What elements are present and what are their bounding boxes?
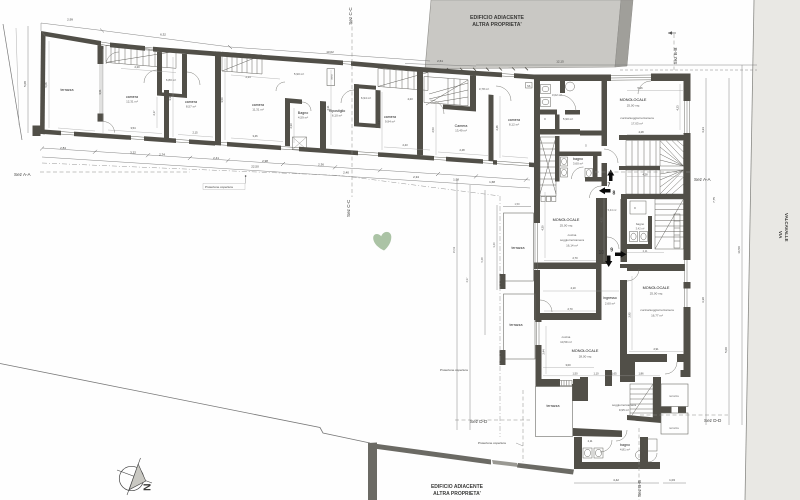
svg-text:1,10: 1,10 [593, 372, 599, 376]
svg-text:bagno: bagno [620, 443, 630, 447]
svg-text:5,90 m²: 5,90 m² [563, 117, 573, 121]
svg-text:3,60 m²: 3,60 m² [573, 162, 583, 166]
svg-text:bagno: bagno [636, 222, 645, 226]
svg-text:1,68: 1,68 [489, 180, 495, 184]
svg-text:3,78 m²: 3,78 m² [479, 87, 489, 91]
svg-text:10: 10 [598, 250, 604, 256]
svg-text:Sez A-A: Sez A-A [694, 177, 712, 182]
svg-text:2,20: 2,20 [134, 65, 140, 69]
svg-text:4,81 m²: 4,81 m² [620, 448, 630, 452]
svg-text:4,42: 4,42 [613, 478, 619, 482]
svg-text:Sez C-C: Sez C-C [348, 7, 353, 25]
svg-text:ingresso: ingresso [603, 296, 617, 300]
svg-text:2,84: 2,84 [60, 146, 66, 150]
svg-text:2,41: 2,41 [213, 156, 219, 160]
svg-text:4,59 m²: 4,59 m² [298, 116, 308, 120]
svg-text:4,28: 4,28 [638, 130, 644, 134]
svg-text:MONOLOCALE: MONOLOCALE [643, 286, 670, 290]
svg-text:2,95: 2,95 [628, 312, 632, 318]
svg-text:4,23: 4,23 [676, 105, 680, 111]
svg-text:2,33: 2,33 [289, 123, 293, 129]
svg-text:1,98: 1,98 [453, 178, 459, 182]
svg-text:camera: camera [384, 115, 396, 119]
svg-text:Sez D-D: Sez D-D [704, 418, 722, 423]
svg-text:D: D [634, 206, 636, 210]
svg-text:camera: camera [508, 118, 520, 122]
svg-text:4,28: 4,28 [642, 173, 648, 177]
svg-text:Sez D-D: Sez D-D [470, 419, 488, 424]
svg-text:22,50: 22,50 [251, 165, 259, 169]
svg-text:soggiorno/camera: soggiorno/camera [612, 403, 636, 407]
svg-text:cucina: cucina [562, 335, 571, 339]
svg-text:Sez B-B: Sez B-B [637, 480, 642, 497]
svg-text:13,02: 13,02 [326, 50, 334, 54]
svg-text:VIA: VIA [778, 231, 783, 239]
svg-text:terrazza: terrazza [512, 246, 525, 250]
svg-text:MONOLOCALE: MONOLOCALE [620, 98, 647, 102]
svg-text:3,40: 3,40 [492, 242, 496, 248]
svg-text:2,99: 2,99 [67, 18, 73, 22]
svg-text:2,70: 2,70 [567, 307, 573, 311]
svg-text:4,30: 4,30 [541, 225, 545, 231]
svg-text:7: 7 [608, 183, 611, 189]
svg-text:2,43: 2,43 [402, 143, 408, 147]
svg-text:5,08: 5,08 [23, 81, 27, 87]
svg-text:Protezione copertura: Protezione copertura [478, 441, 506, 445]
svg-text:28,00 mq: 28,00 mq [579, 355, 592, 359]
svg-text:25,00 mq: 25,00 mq [560, 224, 573, 228]
svg-text:16,14 m²: 16,14 m² [566, 244, 578, 248]
svg-text:MONOLOCALE: MONOLOCALE [553, 218, 580, 222]
svg-text:1,50: 1,50 [572, 372, 578, 376]
svg-text:2,46: 2,46 [495, 125, 499, 131]
svg-text:2,60 m²: 2,60 m² [605, 302, 615, 306]
svg-text:13,49 m²: 13,49 m² [455, 129, 467, 133]
svg-text:2,11: 2,11 [588, 439, 593, 443]
svg-text:9: 9 [610, 248, 613, 254]
svg-text:cucina/soggiorno/camera: cucina/soggiorno/camera [620, 116, 654, 120]
svg-text:1,86: 1,86 [638, 372, 644, 376]
svg-text:3,46: 3,46 [252, 134, 258, 138]
svg-text:11,31 m²: 11,31 m² [252, 108, 264, 112]
svg-text:25,00 mq: 25,00 mq [627, 104, 640, 108]
svg-text:4,10: 4,10 [570, 286, 576, 290]
svg-text:3,22: 3,22 [130, 151, 136, 155]
svg-text:4,31: 4,31 [326, 105, 330, 111]
svg-text:EDIFICIO ADIACENTE: EDIFICIO ADIACENTE [470, 15, 525, 21]
svg-text:terrazza: terrazza [510, 323, 523, 327]
svg-text:5,26: 5,26 [637, 86, 643, 90]
svg-text:8,12 m²: 8,12 m² [509, 123, 519, 127]
svg-text:2,34: 2,34 [413, 175, 419, 179]
svg-text:5,00: 5,00 [724, 347, 728, 353]
svg-text:00/50: 00/50 [332, 73, 334, 79]
svg-text:MONOLOCALE: MONOLOCALE [572, 349, 599, 353]
svg-text:4,23: 4,23 [407, 97, 413, 101]
svg-text:4,35: 4,35 [600, 217, 604, 223]
svg-text:2,91: 2,91 [653, 347, 659, 351]
svg-text:Ripostiglio: Ripostiglio [329, 109, 346, 113]
svg-text:cucina/soggiorno/camera: cucina/soggiorno/camera [640, 308, 674, 312]
svg-text:terrazza: terrazza [669, 394, 679, 398]
svg-text:cucina: cucina [568, 233, 577, 237]
svg-text:9,94 m²: 9,94 m² [385, 120, 395, 124]
svg-text:2,15: 2,15 [192, 131, 198, 135]
svg-text:ALTRA PROPRIETA': ALTRA PROPRIETA' [433, 491, 481, 497]
svg-text:3,51: 3,51 [98, 89, 102, 95]
svg-text:Sez B-B: Sez B-B [673, 48, 678, 65]
svg-text:3,54: 3,54 [130, 126, 136, 130]
svg-text:ALTRA PROPRIETA': ALTRA PROPRIETA' [472, 22, 522, 28]
svg-text:3,42 m²: 3,42 m² [636, 227, 645, 231]
svg-text:15,52: 15,52 [452, 246, 456, 253]
svg-text:bagno: bagno [573, 157, 583, 161]
svg-text:3,00: 3,00 [565, 363, 571, 367]
svg-text:Sez A-A: Sez A-A [14, 172, 32, 177]
svg-text:N: N [142, 483, 154, 491]
svg-text:5,48: 5,48 [480, 257, 484, 263]
svg-text:25,00 mq: 25,00 mq [650, 292, 663, 296]
svg-text:3,02 m²: 3,02 m² [552, 93, 562, 97]
svg-text:2,47: 2,47 [377, 119, 381, 125]
svg-text:6,10 m²: 6,10 m² [332, 114, 342, 118]
svg-text:2,44: 2,44 [542, 349, 546, 355]
svg-text:EDIFICIO ADIACENTE: EDIFICIO ADIACENTE [431, 484, 484, 490]
svg-text:17,03 m²: 17,03 m² [631, 122, 643, 126]
svg-text:4,37: 4,37 [465, 277, 469, 283]
svg-text:3,30: 3,30 [701, 297, 705, 303]
svg-text:2,61: 2,61 [437, 59, 443, 63]
svg-text:1,50: 1,50 [514, 202, 520, 206]
svg-text:2,40: 2,40 [343, 171, 349, 175]
svg-text:8,57 m²: 8,57 m² [186, 105, 196, 109]
svg-text:Camera: Camera [455, 124, 468, 128]
svg-text:2,11: 2,11 [643, 249, 648, 253]
svg-text:6,94 m²: 6,94 m² [361, 96, 371, 100]
svg-text:Protezione copertura: Protezione copertura [205, 185, 233, 189]
svg-text:7,75: 7,75 [712, 197, 716, 203]
svg-text:D: D [585, 144, 587, 148]
svg-text:soggiorno/camera: soggiorno/camera [560, 238, 584, 242]
svg-text:6,80 m²: 6,80 m² [166, 78, 176, 82]
svg-text:1,65: 1,65 [611, 372, 617, 376]
svg-text:camera: camera [126, 95, 138, 99]
svg-text:3,30: 3,30 [168, 95, 172, 101]
svg-text:2,14: 2,14 [245, 75, 251, 79]
svg-text:terrazza: terrazza [61, 88, 74, 92]
svg-text:12,15: 12,15 [556, 60, 564, 64]
svg-text:2,53: 2,53 [431, 127, 435, 133]
svg-text:10,59 m²: 10,59 m² [560, 340, 572, 344]
svg-text:2,70: 2,70 [572, 256, 578, 260]
svg-text:SS: SS [527, 85, 531, 88]
svg-text:5,06: 5,06 [44, 82, 48, 88]
svg-text:Protezione copertura: Protezione copertura [440, 368, 468, 372]
svg-text:4,23: 4,23 [701, 127, 705, 133]
svg-text:camera: camera [252, 103, 264, 107]
svg-text:2,17: 2,17 [152, 110, 156, 116]
svg-text:5,44 m²: 5,44 m² [608, 208, 617, 212]
svg-text:14,50: 14,50 [737, 246, 741, 254]
svg-text:6,32: 6,32 [160, 33, 166, 37]
svg-text:terrazza: terrazza [669, 426, 679, 430]
svg-text:Sez C-C: Sez C-C [346, 199, 351, 217]
svg-text:VALCAVALLE: VALCAVALLE [784, 213, 789, 242]
svg-text:2,74: 2,74 [159, 153, 165, 157]
svg-text:1,03: 1,03 [669, 478, 675, 482]
svg-text:camera: camera [185, 100, 197, 104]
svg-text:2,48: 2,48 [459, 148, 465, 152]
svg-text:D: D [544, 117, 546, 121]
svg-text:16,77 m²: 16,77 m² [651, 314, 663, 318]
svg-text:12,31 m²: 12,31 m² [126, 100, 138, 104]
svg-text:8: 8 [613, 191, 616, 197]
svg-text:Bagno: Bagno [298, 111, 308, 115]
svg-text:5,90 m²: 5,90 m² [294, 72, 304, 76]
svg-text:2,98: 2,98 [262, 159, 268, 163]
svg-text:terrazza: terrazza [547, 404, 560, 408]
svg-text:9,95 m²: 9,95 m² [619, 408, 629, 412]
svg-text:2,36: 2,36 [318, 163, 324, 167]
svg-text:3,50: 3,50 [220, 97, 224, 103]
